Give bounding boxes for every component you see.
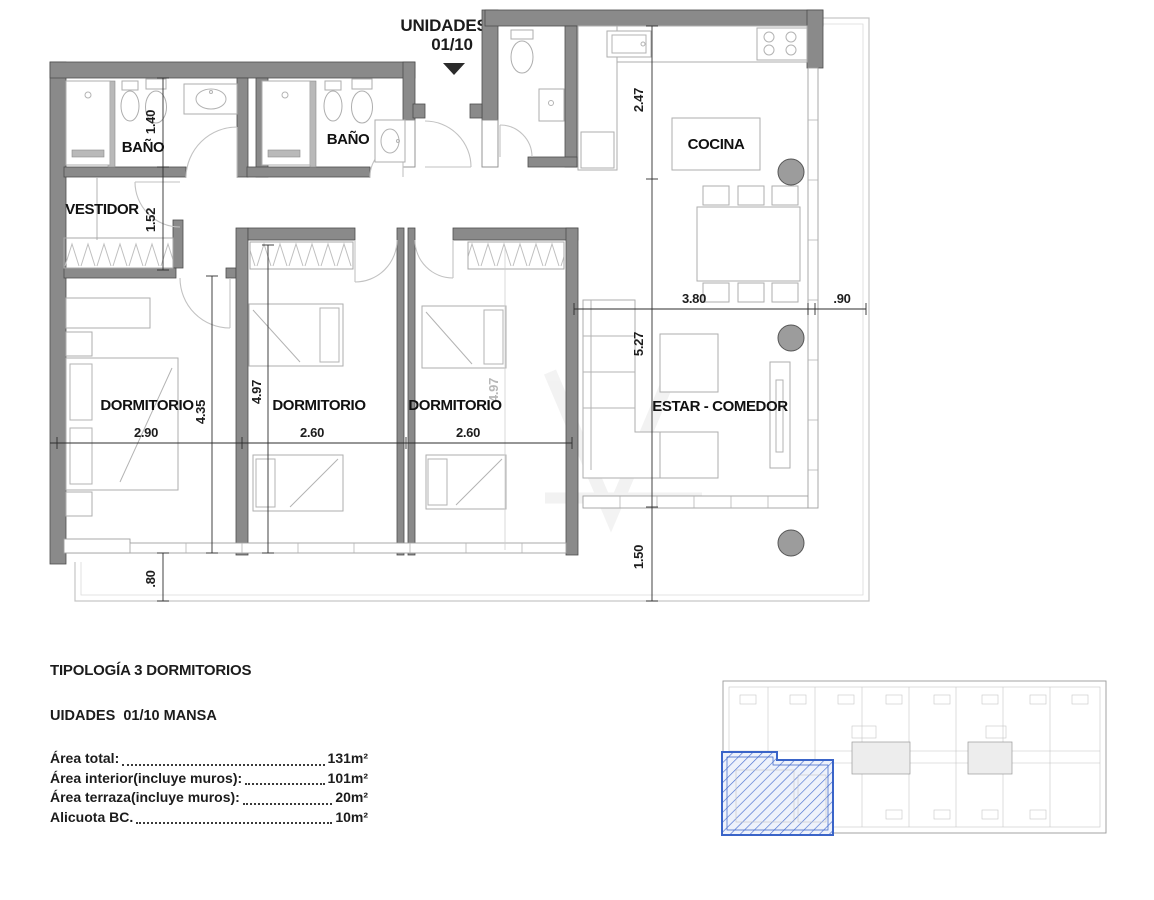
area-value: 101m²: [328, 769, 368, 789]
dim-vestidor-height: 1.52: [143, 208, 158, 232]
room-label-bano1: BAÑO: [122, 138, 165, 156]
dotted-leader: [136, 822, 332, 824]
key-plan: [722, 681, 1106, 835]
dim-dorm3-width: 2.60: [456, 425, 480, 440]
dim-bano-height: 1.40: [143, 110, 158, 134]
area-value: 10m²: [335, 808, 368, 828]
dim-dorm2-width: 2.60: [300, 425, 324, 440]
floorplan-page: UNIDADES 01/10: [0, 0, 1154, 900]
dim-dorm2-height: 4.97: [249, 380, 264, 404]
area-row-total: Área total: 131m²: [50, 749, 368, 769]
room-label-vestidor: VESTIDOR: [65, 201, 139, 218]
typology-info: TIPOLOGÍA 3 DORMITORIOS UIDADES 01/10 MA…: [50, 662, 368, 827]
dim-dorm1-height: 4.35: [193, 400, 208, 424]
area-value: 131m²: [328, 749, 368, 769]
area-label: Alicuota BC.: [50, 808, 133, 828]
key-plan-highlighted-unit: [722, 752, 833, 835]
dotted-leader: [243, 803, 332, 805]
dotted-leader: [122, 764, 324, 766]
typology-heading: TIPOLOGÍA 3 DORMITORIOS: [50, 662, 368, 679]
area-row-alicuota: Alicuota BC. 10m²: [50, 808, 368, 828]
dim-cocina-height: 2.47: [631, 88, 646, 112]
dim-cocina-width: 3.80: [682, 291, 706, 306]
room-label-bano2: BAÑO: [327, 130, 370, 148]
area-label: Área total:: [50, 749, 119, 769]
area-label: Área interior(incluye muros):: [50, 769, 242, 789]
dim-estar-height: 5.27: [631, 332, 646, 356]
typology-subheading: UIDADES 01/10 MANSA: [50, 708, 368, 724]
dim-terrace-width: .90: [833, 291, 850, 306]
room-label-estar-comedor: ESTAR - COMEDOR: [652, 398, 788, 415]
area-row-terraza: Área terraza(incluye muros): 20m²: [50, 788, 368, 808]
room-label-dormitorio1: DORMITORIO: [100, 397, 194, 414]
dim-balcony-depth: .80: [143, 570, 158, 587]
kitchen-fixtures: [578, 26, 807, 302]
room-label-cocina: COCINA: [688, 136, 745, 153]
doors: [135, 121, 532, 328]
area-value: 20m²: [335, 788, 368, 808]
room-label-dormitorio3: DORMITORIO: [408, 397, 502, 414]
dim-dorm1-width: 2.90: [134, 425, 158, 440]
area-row-interior: Área interior(incluye muros): 101m²: [50, 769, 368, 789]
room-label-dormitorio2: DORMITORIO: [272, 397, 366, 414]
dim-terrace-depth: 1.50: [631, 545, 646, 569]
dotted-leader: [245, 783, 324, 785]
area-label: Área terraza(incluye muros):: [50, 788, 240, 808]
